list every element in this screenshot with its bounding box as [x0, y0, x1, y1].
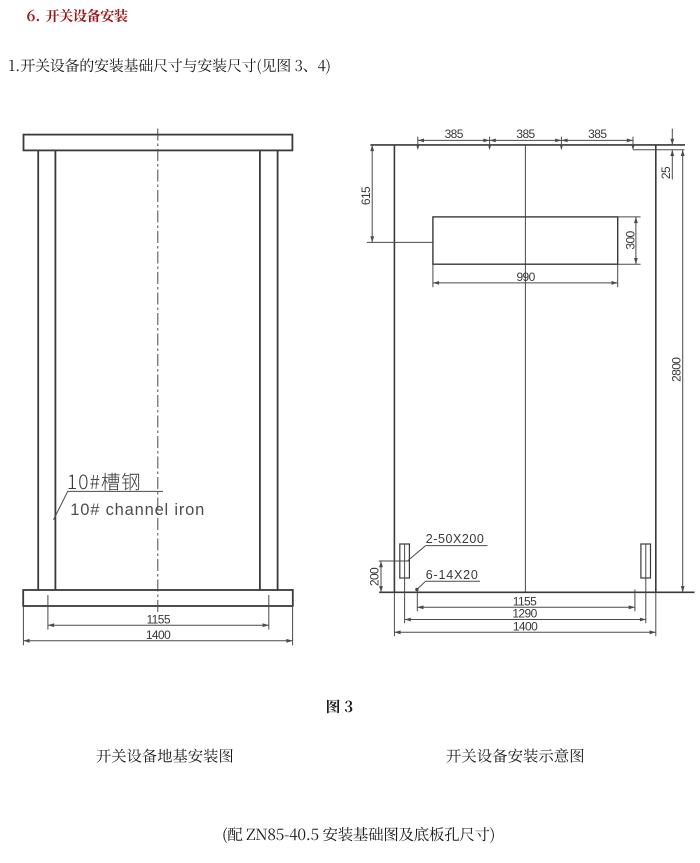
svg-text:25: 25: [659, 166, 673, 179]
svg-text:385: 385: [445, 127, 464, 141]
svg-text:200: 200: [368, 567, 382, 586]
svg-text:300: 300: [624, 230, 638, 249]
svg-text:615: 615: [359, 186, 373, 205]
svg-text:1400: 1400: [513, 619, 538, 633]
svg-text:385: 385: [588, 127, 607, 141]
svg-text:385: 385: [516, 127, 535, 141]
svg-text:10# channel iron: 10# channel iron: [70, 501, 205, 519]
svg-text:2800: 2800: [670, 357, 684, 382]
svg-text:1155: 1155: [146, 612, 170, 626]
svg-text:2-50X200: 2-50X200: [426, 532, 485, 546]
svg-text:6-14X20: 6-14X20: [426, 568, 479, 582]
svg-text:990: 990: [516, 270, 535, 284]
svg-text:1400: 1400: [146, 628, 171, 642]
